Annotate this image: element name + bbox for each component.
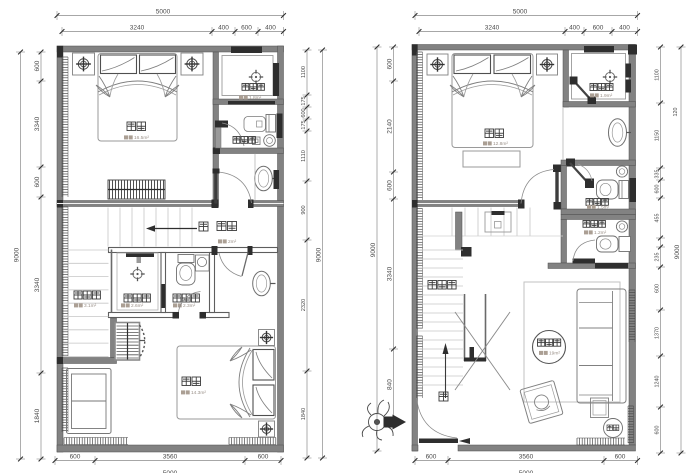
- svg-text:400: 400: [619, 25, 630, 32]
- svg-text:9000: 9000: [674, 244, 681, 259]
- svg-text:19m²: 19m²: [549, 351, 560, 357]
- svg-text:1.5m²: 1.5m²: [597, 205, 610, 211]
- svg-text:3240: 3240: [485, 25, 500, 32]
- svg-text:600: 600: [615, 454, 626, 461]
- svg-text:600: 600: [655, 284, 661, 293]
- svg-text:1.2m²: 1.2m²: [594, 230, 607, 236]
- svg-text:400: 400: [569, 25, 580, 32]
- svg-text:1100: 1100: [301, 66, 307, 78]
- svg-text:9000: 9000: [14, 247, 21, 262]
- svg-text:335: 335: [655, 170, 661, 179]
- svg-text:1840: 1840: [34, 408, 41, 423]
- svg-text:3.1m²: 3.1m²: [84, 303, 97, 309]
- svg-text:600: 600: [655, 426, 661, 435]
- svg-text:1240: 1240: [655, 376, 661, 388]
- svg-text:3340: 3340: [34, 277, 41, 292]
- svg-text:600: 600: [387, 58, 394, 69]
- svg-text:3560: 3560: [519, 454, 534, 461]
- svg-text:600: 600: [655, 185, 661, 194]
- svg-text:400: 400: [265, 25, 276, 32]
- svg-text:455: 455: [655, 214, 661, 223]
- svg-text:1110: 1110: [301, 150, 307, 162]
- svg-text:840: 840: [387, 379, 394, 390]
- svg-text:235: 235: [655, 253, 661, 262]
- svg-text:5000: 5000: [156, 9, 171, 16]
- svg-text:600: 600: [258, 454, 269, 461]
- svg-text:3340: 3340: [34, 116, 41, 131]
- svg-text:2m²: 2m²: [228, 239, 237, 245]
- svg-text:3340: 3340: [387, 266, 394, 281]
- svg-text:900: 900: [301, 205, 307, 214]
- svg-text:2140: 2140: [387, 119, 394, 134]
- svg-text:600: 600: [70, 454, 81, 461]
- svg-text:600: 600: [241, 25, 252, 32]
- svg-text:600: 600: [34, 60, 41, 71]
- svg-text:600: 600: [387, 180, 394, 191]
- svg-text:1840: 1840: [301, 408, 307, 420]
- svg-text:9000: 9000: [370, 242, 377, 257]
- svg-text:1370: 1370: [655, 327, 661, 339]
- svg-text:175: 175: [301, 120, 307, 129]
- svg-text:5000: 5000: [513, 9, 528, 16]
- svg-text:2.3m²: 2.3m²: [183, 303, 196, 309]
- svg-text:600: 600: [426, 454, 437, 461]
- svg-text:2.6m²: 2.6m²: [131, 303, 144, 309]
- svg-text:1100: 1100: [655, 69, 661, 81]
- svg-text:120: 120: [673, 108, 679, 117]
- svg-text:600: 600: [34, 176, 41, 187]
- svg-text:3560: 3560: [163, 454, 178, 461]
- svg-text:9000: 9000: [316, 247, 323, 262]
- svg-text:12.8m²: 12.8m²: [493, 141, 508, 147]
- svg-text:14.3m²: 14.3m²: [191, 390, 206, 396]
- svg-text:1.8m²: 1.8m²: [249, 95, 262, 101]
- svg-text:600: 600: [301, 108, 307, 117]
- svg-text:2320: 2320: [301, 299, 307, 311]
- svg-text:16.5m²: 16.5m²: [134, 135, 149, 141]
- svg-text:600: 600: [593, 25, 604, 32]
- svg-text:3240: 3240: [130, 25, 145, 32]
- svg-text:400: 400: [218, 25, 229, 32]
- svg-text:1.9m²: 1.9m²: [600, 93, 613, 99]
- svg-text:175: 175: [301, 96, 307, 105]
- svg-text:1150: 1150: [655, 130, 661, 142]
